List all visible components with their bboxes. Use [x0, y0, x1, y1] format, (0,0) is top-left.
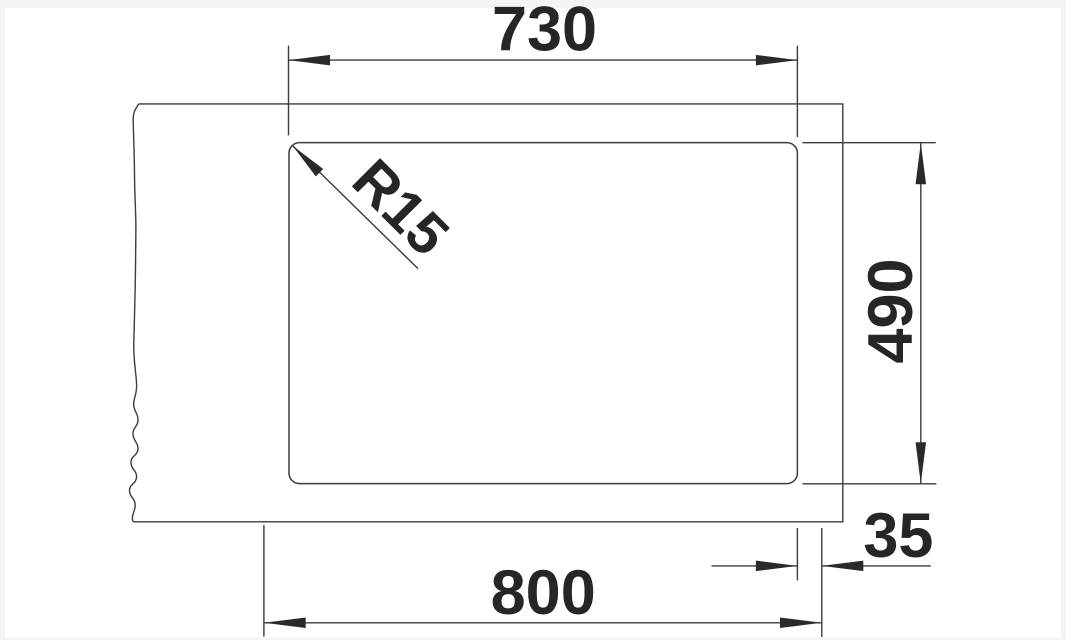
svg-text:800: 800	[491, 558, 596, 628]
svg-text:490: 490	[856, 258, 926, 363]
svg-text:35: 35	[863, 501, 933, 571]
svg-text:730: 730	[492, 0, 597, 65]
